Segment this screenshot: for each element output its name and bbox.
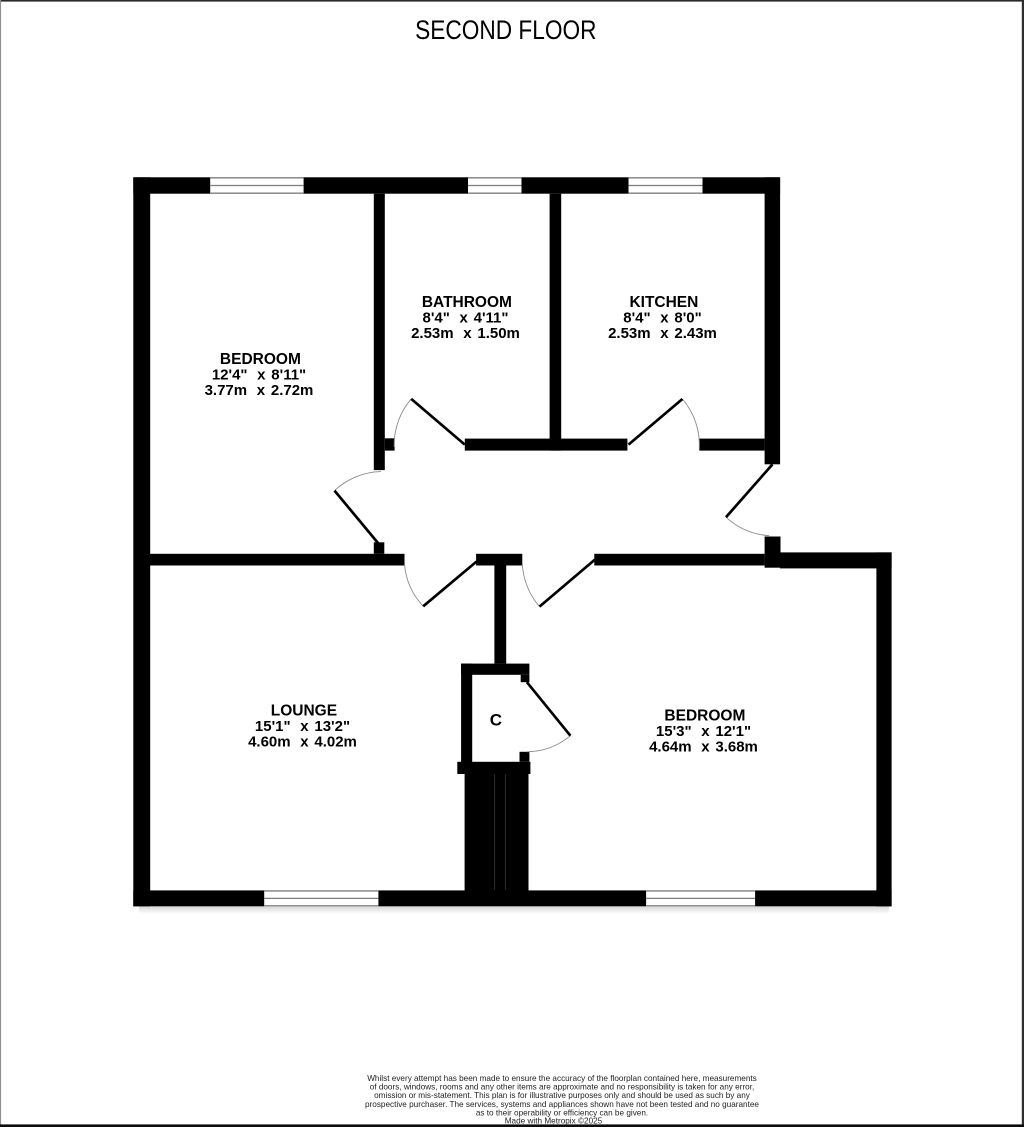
- svg-text:SECOND FLOOR: SECOND FLOOR: [415, 15, 596, 45]
- svg-text:BEDROOM: BEDROOM: [220, 351, 301, 368]
- svg-text:15'3"x12'1": 15'3"x12'1": [656, 723, 751, 740]
- svg-text:4.64mx3.68m: 4.64mx3.68m: [649, 739, 758, 756]
- svg-text:C: C: [490, 711, 502, 730]
- svg-text:BEDROOM: BEDROOM: [664, 708, 745, 725]
- svg-text:Made with Metropix ©2025: Made with Metropix ©2025: [505, 1116, 603, 1125]
- svg-text:4.60mx4.02m: 4.60mx4.02m: [248, 733, 357, 750]
- svg-text:2.53mx1.50m: 2.53mx1.50m: [411, 325, 520, 342]
- svg-text:LOUNGE: LOUNGE: [271, 702, 337, 719]
- svg-text:Whilst every attempt has been: Whilst every attempt has been made to en…: [367, 1074, 757, 1083]
- svg-text:3.77mx2.72m: 3.77mx2.72m: [205, 382, 314, 399]
- svg-text:15'1"x13'2": 15'1"x13'2": [255, 718, 350, 735]
- svg-text:omission or mis-statement. Thi: omission or mis-statement. This plan is …: [374, 1091, 751, 1100]
- svg-text:KITCHEN: KITCHEN: [629, 294, 698, 311]
- svg-text:2.53mx2.43m: 2.53mx2.43m: [608, 325, 717, 342]
- svg-text:8'4"x8'0": 8'4"x8'0": [623, 309, 701, 326]
- svg-text:8'4"x4'11": 8'4"x4'11": [422, 309, 508, 326]
- svg-text:BATHROOM: BATHROOM: [422, 294, 512, 311]
- svg-text:12'4"x8'11": 12'4"x8'11": [212, 367, 306, 384]
